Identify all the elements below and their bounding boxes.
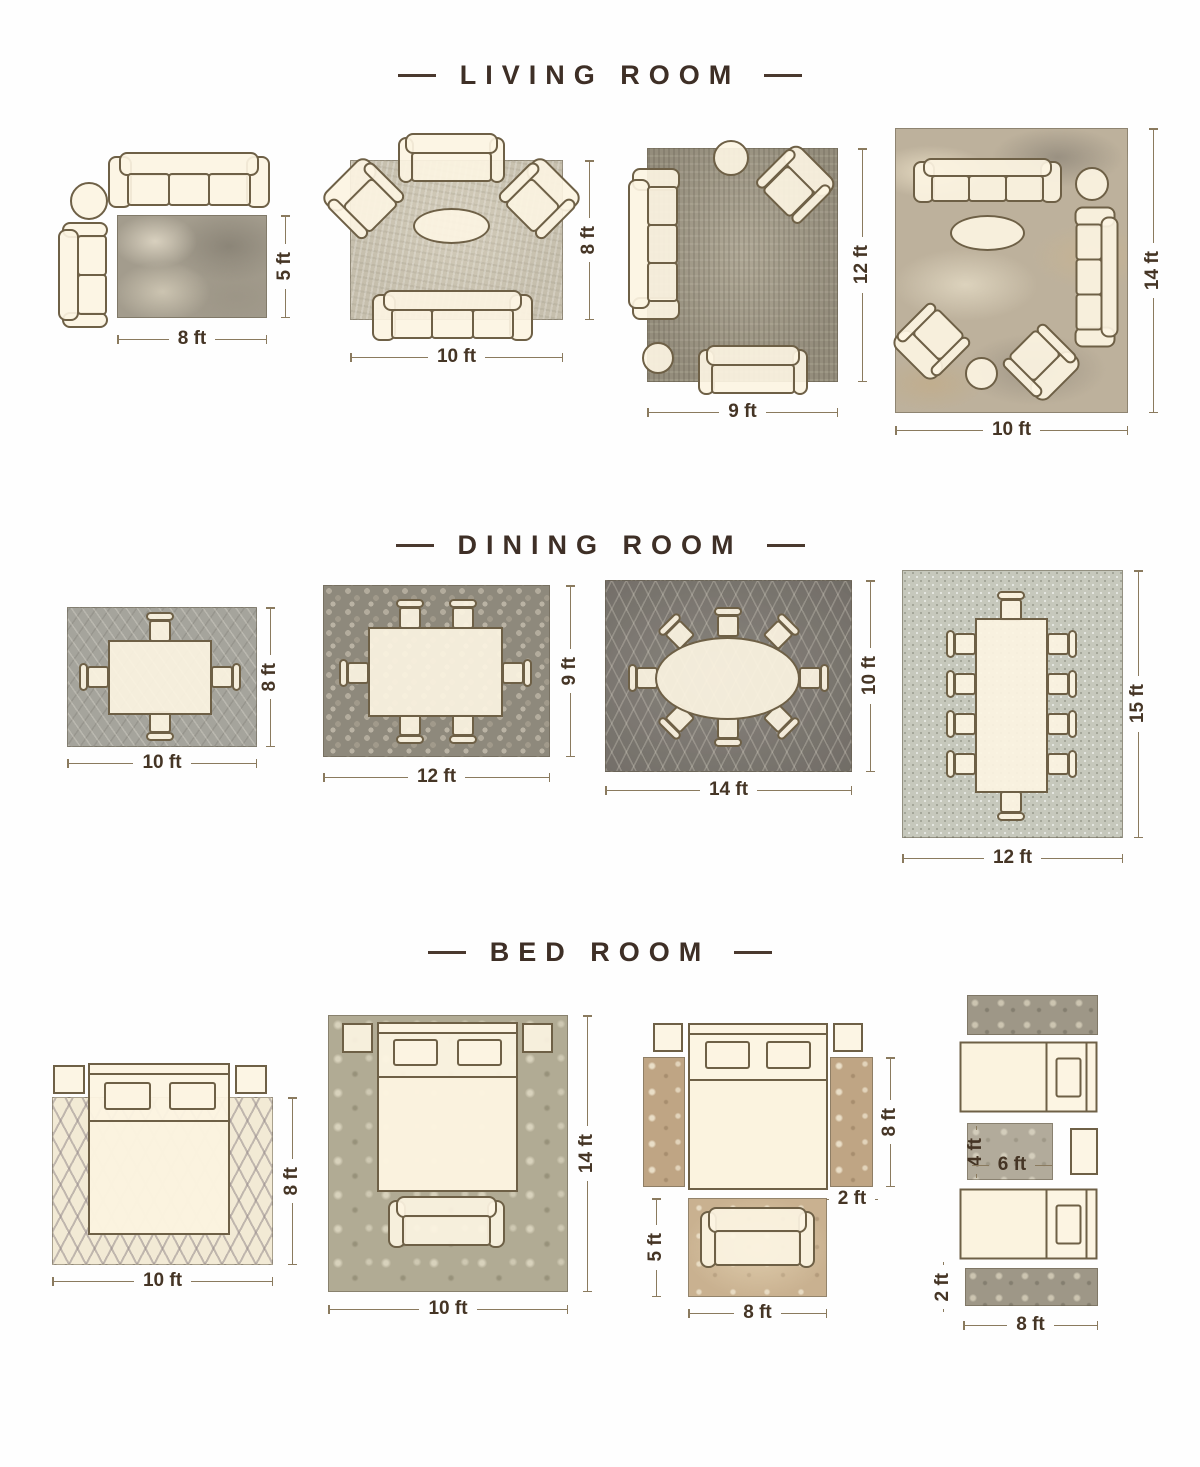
dining-chair: [211, 663, 241, 691]
header-dash: [398, 74, 436, 77]
dining-chair: [1047, 630, 1077, 658]
header-dash: [428, 951, 466, 954]
dining-chair: [946, 750, 976, 778]
headboard: [1086, 1042, 1098, 1113]
height-dimension: 8 ft: [257, 607, 283, 747]
width-dimension: 10 ft: [895, 417, 1128, 443]
width-dimension: 14 ft: [605, 777, 852, 803]
bench: [700, 1207, 815, 1268]
dining-chair: [502, 659, 532, 687]
dining-chair: [1047, 670, 1077, 698]
width-dimension: 10 ft: [52, 1268, 273, 1294]
nightstand: [833, 1023, 863, 1052]
oval-coffee-table: [413, 208, 490, 244]
dining-chair: [339, 659, 369, 687]
pillow: [169, 1082, 216, 1110]
blanket: [688, 1079, 828, 1190]
width-dimension: 9 ft: [647, 399, 838, 425]
three-seat-sofa: [372, 290, 533, 341]
width-dimension: 10 ft: [328, 1296, 568, 1322]
runner-rug: [830, 1057, 873, 1187]
width-dimension: 8 ft: [117, 326, 267, 352]
area-rug: [117, 215, 267, 318]
section-title: LIVING ROOM: [460, 60, 741, 91]
dining-table: [108, 640, 212, 715]
runner-rug: [965, 1268, 1098, 1306]
bed: [377, 1022, 518, 1192]
round-ottoman: [642, 342, 674, 374]
header-dash: [734, 951, 772, 954]
dining-chair: [396, 714, 424, 744]
width-dimension: 8 ft: [688, 1300, 827, 1326]
height-dimension: 14 ft: [1140, 128, 1166, 413]
width-dimension: 10 ft: [350, 344, 563, 370]
section-title: DINING ROOM: [458, 530, 743, 561]
accent-width-dimension: 6 ft: [972, 1152, 1052, 1178]
twin-bed: [960, 1042, 1098, 1113]
dining-chair: [1047, 710, 1077, 738]
nightstand: [653, 1023, 683, 1052]
loveseat-sofa: [58, 222, 108, 328]
pillow: [104, 1082, 151, 1110]
height-dimension: 5 ft: [272, 215, 298, 318]
width-dimension: 12 ft: [902, 845, 1123, 871]
runner-rug: [967, 995, 1098, 1035]
blanket: [960, 1042, 1048, 1113]
pillow: [766, 1041, 811, 1069]
dining-chair: [714, 607, 742, 637]
accent-height-dimension: 5 ft: [643, 1198, 669, 1297]
runner-width-dimension: 2 ft: [930, 1262, 956, 1312]
bed: [88, 1063, 230, 1235]
width-dimension: 8 ft: [963, 1312, 1098, 1338]
nightstand: [53, 1065, 85, 1094]
dining-chair: [1047, 750, 1077, 778]
dining-table: [975, 618, 1048, 793]
dining-room-header: DINING ROOM: [0, 525, 1200, 565]
height-dimension: 15 ft: [1125, 570, 1151, 838]
nightstand: [235, 1065, 267, 1094]
dining-chair: [997, 791, 1025, 821]
headboard: [688, 1023, 828, 1035]
loveseat-sofa: [698, 345, 808, 395]
three-seat-sofa: [108, 152, 270, 208]
dining-table: [368, 627, 503, 717]
blanket: [960, 1189, 1048, 1260]
pillow: [457, 1039, 502, 1066]
header-dash: [767, 544, 805, 547]
three-seat-sofa: [913, 158, 1062, 203]
width-dimension: 12 ft: [323, 764, 550, 790]
runner-width-dimension: 2 ft: [826, 1186, 878, 1212]
height-dimension: 10 ft: [857, 580, 883, 772]
blanket: [377, 1076, 518, 1192]
three-seat-sofa: [1075, 207, 1119, 348]
nightstand: [522, 1023, 553, 1053]
dining-chair: [146, 612, 174, 642]
section-title: BED ROOM: [490, 937, 711, 968]
three-seat-sofa: [628, 168, 680, 320]
round-side-table: [70, 182, 108, 220]
dining-chair: [396, 599, 424, 629]
dining-chair: [946, 710, 976, 738]
height-dimension: 8 ft: [279, 1097, 305, 1265]
runner-rug: [643, 1057, 685, 1187]
headboard: [1086, 1189, 1098, 1260]
headboard: [88, 1063, 230, 1075]
loveseat-sofa: [398, 133, 505, 183]
pillow: [1056, 1205, 1082, 1245]
nightstand: [342, 1023, 373, 1053]
round-side-table: [1075, 167, 1109, 201]
headboard: [377, 1022, 518, 1034]
pillow: [705, 1041, 750, 1069]
dining-chair: [799, 664, 829, 692]
height-dimension: 9 ft: [557, 585, 583, 757]
dining-chair: [449, 714, 477, 744]
dining-chair: [946, 630, 976, 658]
living-room-header: LIVING ROOM: [0, 55, 1200, 95]
height-dimension: 8 ft: [576, 160, 602, 320]
dining-chair: [449, 599, 477, 629]
oval-dining-table: [655, 637, 800, 720]
bench: [388, 1196, 505, 1248]
rug-size-guide: LIVING ROOM 8 ft 5 ft 10 ft 8 ft: [0, 0, 1200, 1467]
height-dimension: 14 ft: [574, 1015, 600, 1292]
header-dash: [764, 74, 802, 77]
width-dimension: 10 ft: [67, 750, 257, 776]
pillow: [1056, 1058, 1082, 1098]
blanket: [88, 1120, 230, 1235]
pillow: [393, 1039, 438, 1066]
dining-chair: [946, 670, 976, 698]
dining-chair: [628, 664, 658, 692]
height-dimension: 12 ft: [849, 148, 875, 382]
round-ottoman: [713, 140, 749, 176]
dining-chair: [714, 717, 742, 747]
round-ottoman: [965, 357, 998, 390]
dining-chair: [997, 591, 1025, 621]
nightstand: [1070, 1128, 1098, 1175]
twin-bed: [960, 1189, 1098, 1260]
bed-room-header: BED ROOM: [0, 932, 1200, 972]
dining-chair: [79, 663, 109, 691]
oval-coffee-table: [950, 215, 1025, 251]
dining-chair: [146, 711, 174, 741]
runner-height-dimension: 8 ft: [877, 1057, 903, 1187]
header-dash: [396, 544, 434, 547]
bed: [688, 1023, 828, 1190]
